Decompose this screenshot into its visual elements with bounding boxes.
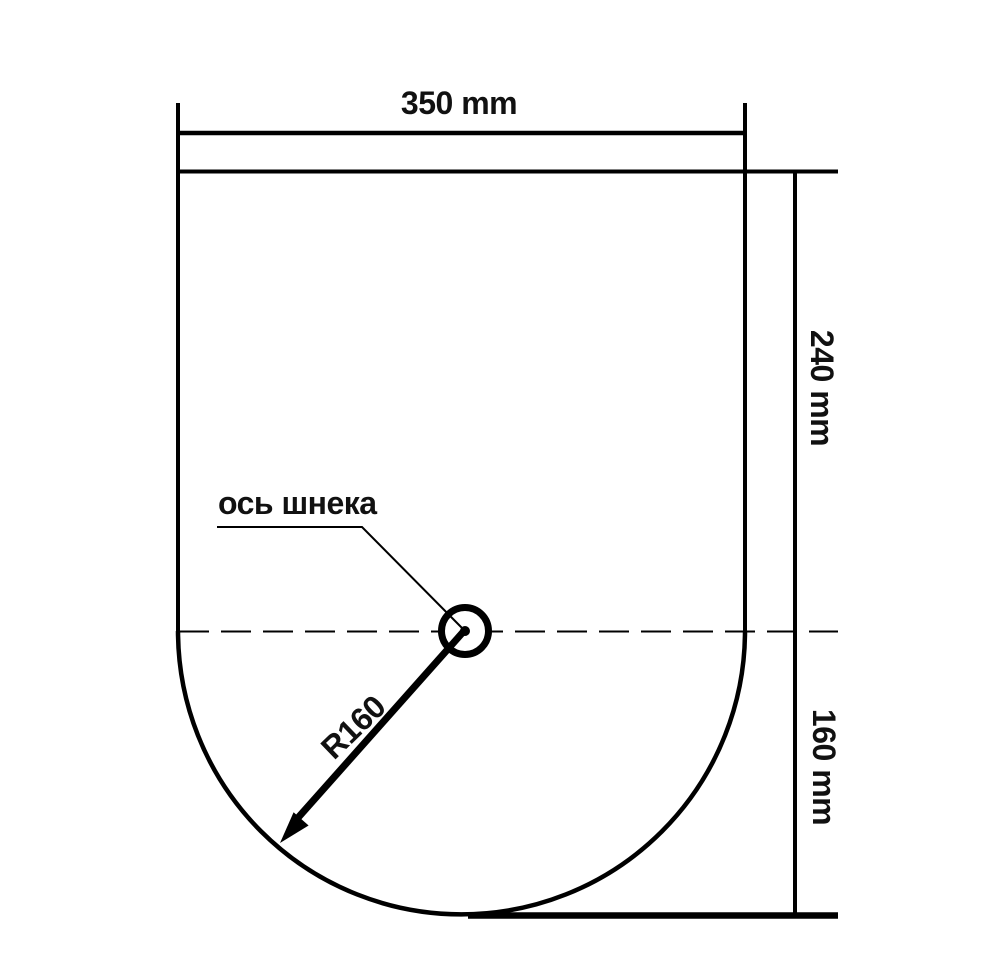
auger-axis-center-dot — [460, 626, 470, 636]
dimension-label-upper-height: 240 mm — [804, 330, 840, 446]
radius-arrowhead — [280, 812, 309, 843]
auger-axis-leader-line — [217, 527, 464, 630]
trough-cross-section-drawing: 350 mm 240 mm 160 mm ось шнека R160 — [0, 0, 1000, 977]
dimension-label-lower-height: 160 mm — [806, 709, 842, 825]
drawing-canvas: 350 mm 240 mm 160 mm ось шнека R160 — [0, 0, 1000, 977]
dimension-label-top-width: 350 mm — [401, 85, 517, 121]
auger-axis-label: ось шнека — [218, 485, 377, 521]
profile-bottom-arc — [178, 631, 745, 914]
